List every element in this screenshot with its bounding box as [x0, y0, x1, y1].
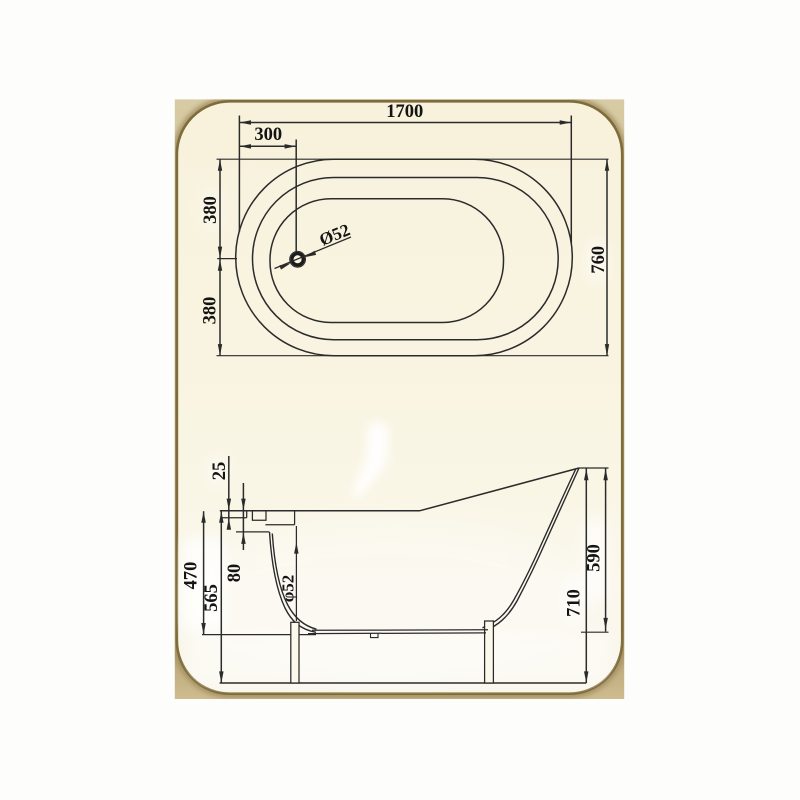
svg-text:25: 25 [210, 462, 230, 481]
svg-text:380: 380 [201, 196, 221, 224]
svg-text:φ52: φ52 [279, 575, 298, 603]
svg-text:300: 300 [254, 125, 282, 145]
svg-text:565: 565 [202, 584, 222, 612]
svg-text:710: 710 [565, 589, 585, 617]
svg-text:470: 470 [182, 562, 202, 590]
svg-text:80: 80 [225, 564, 245, 583]
svg-text:760: 760 [589, 246, 609, 274]
svg-text:590: 590 [585, 544, 605, 572]
svg-text:380: 380 [201, 297, 221, 325]
svg-text:1700: 1700 [386, 102, 423, 122]
